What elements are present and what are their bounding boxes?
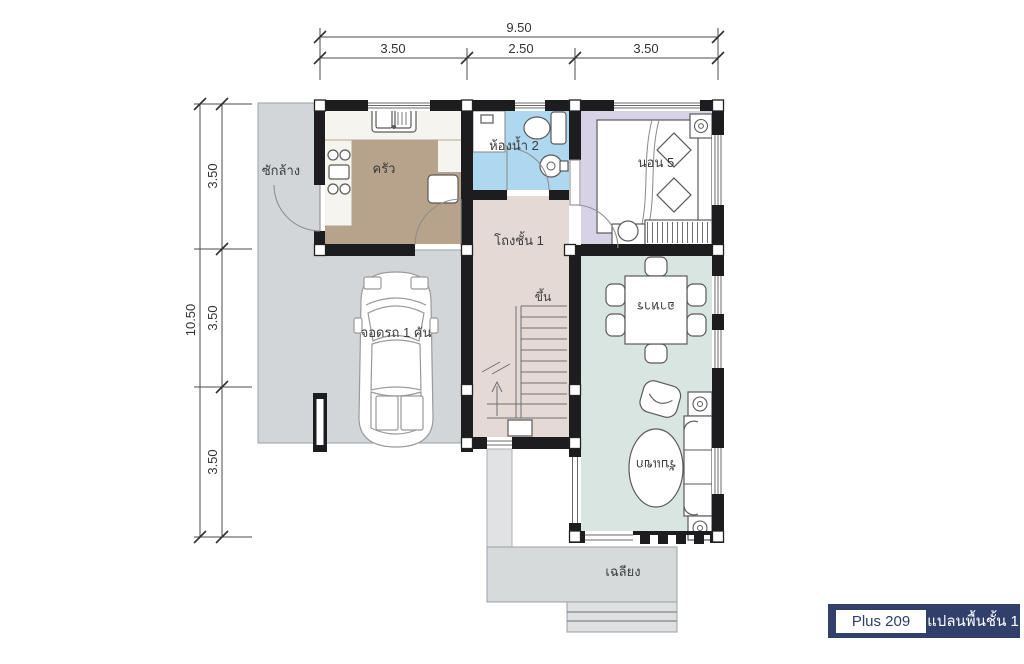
porch-steps [567,602,677,632]
car-icon [354,272,438,447]
dim-top-seg-3: 3.50 [633,41,658,56]
dim-top-seg-1: 3.50 [380,41,405,56]
dining-chair [645,344,667,363]
dim-top-total: 9.50 [506,20,531,35]
sofa-end-table [688,392,712,416]
dimensions-left: 10.50 3.50 3.50 3.50 [183,98,252,543]
dining-label: อาหาร [637,299,675,314]
laundry-label: ซักล้าง [262,163,300,178]
sofa-icon [684,416,712,516]
bedroom-furniture [597,114,712,245]
hall-label: โถงชั้น 1 [494,231,544,248]
floor-plan-svg: ซักล้าง ครัว ห้องน้ำ 2 นอน 5 โถงชั้น 1 ข… [0,0,1024,664]
water-heater-icon [481,115,493,123]
porch-slab [487,547,677,602]
dim-left-total: 10.50 [183,304,198,337]
dining-chair [645,257,667,276]
floor-plan-page: ซักล้าง ครัว ห้องน้ำ 2 นอน 5 โถงชั้น 1 ข… [0,0,1024,664]
stair-newel [508,420,532,436]
dimensions-top: 9.50 3.50 2.50 3.50 [314,20,724,80]
dim-left-seg-3: 3.50 [205,449,220,474]
stool-icon [618,221,638,241]
bedroom-label: นอน 5 [638,155,674,170]
badge-caption-label: แปลนพื้นชั้น 1 [927,610,1019,630]
plan-badge: Plus 209 แปลนพื้นชั้น 1 [828,604,1020,638]
badge-model-label: Plus 209 [852,613,910,630]
kitchen-label: ครัว [373,161,396,176]
dining-chair [606,284,625,306]
living-label: รับแขก [636,457,676,472]
dining-chair [606,314,625,336]
dining-chair [687,314,706,336]
corner-table [690,114,712,138]
fridge-icon [428,175,458,203]
bathroom-label: ห้องน้ำ 2 [489,136,539,153]
porch-label: เฉลียง [605,564,640,579]
dining-chair [687,284,706,306]
dim-top-seg-2: 2.50 [508,41,533,56]
carport-label: จอดรถ 1 คัน [361,325,432,340]
stairs-up-label: ขึ้น [535,288,551,304]
dim-left-seg-2: 3.50 [205,305,220,330]
wardrobe-icon [645,220,712,245]
walkway [487,449,512,547]
dim-left-seg-1: 3.50 [205,163,220,188]
